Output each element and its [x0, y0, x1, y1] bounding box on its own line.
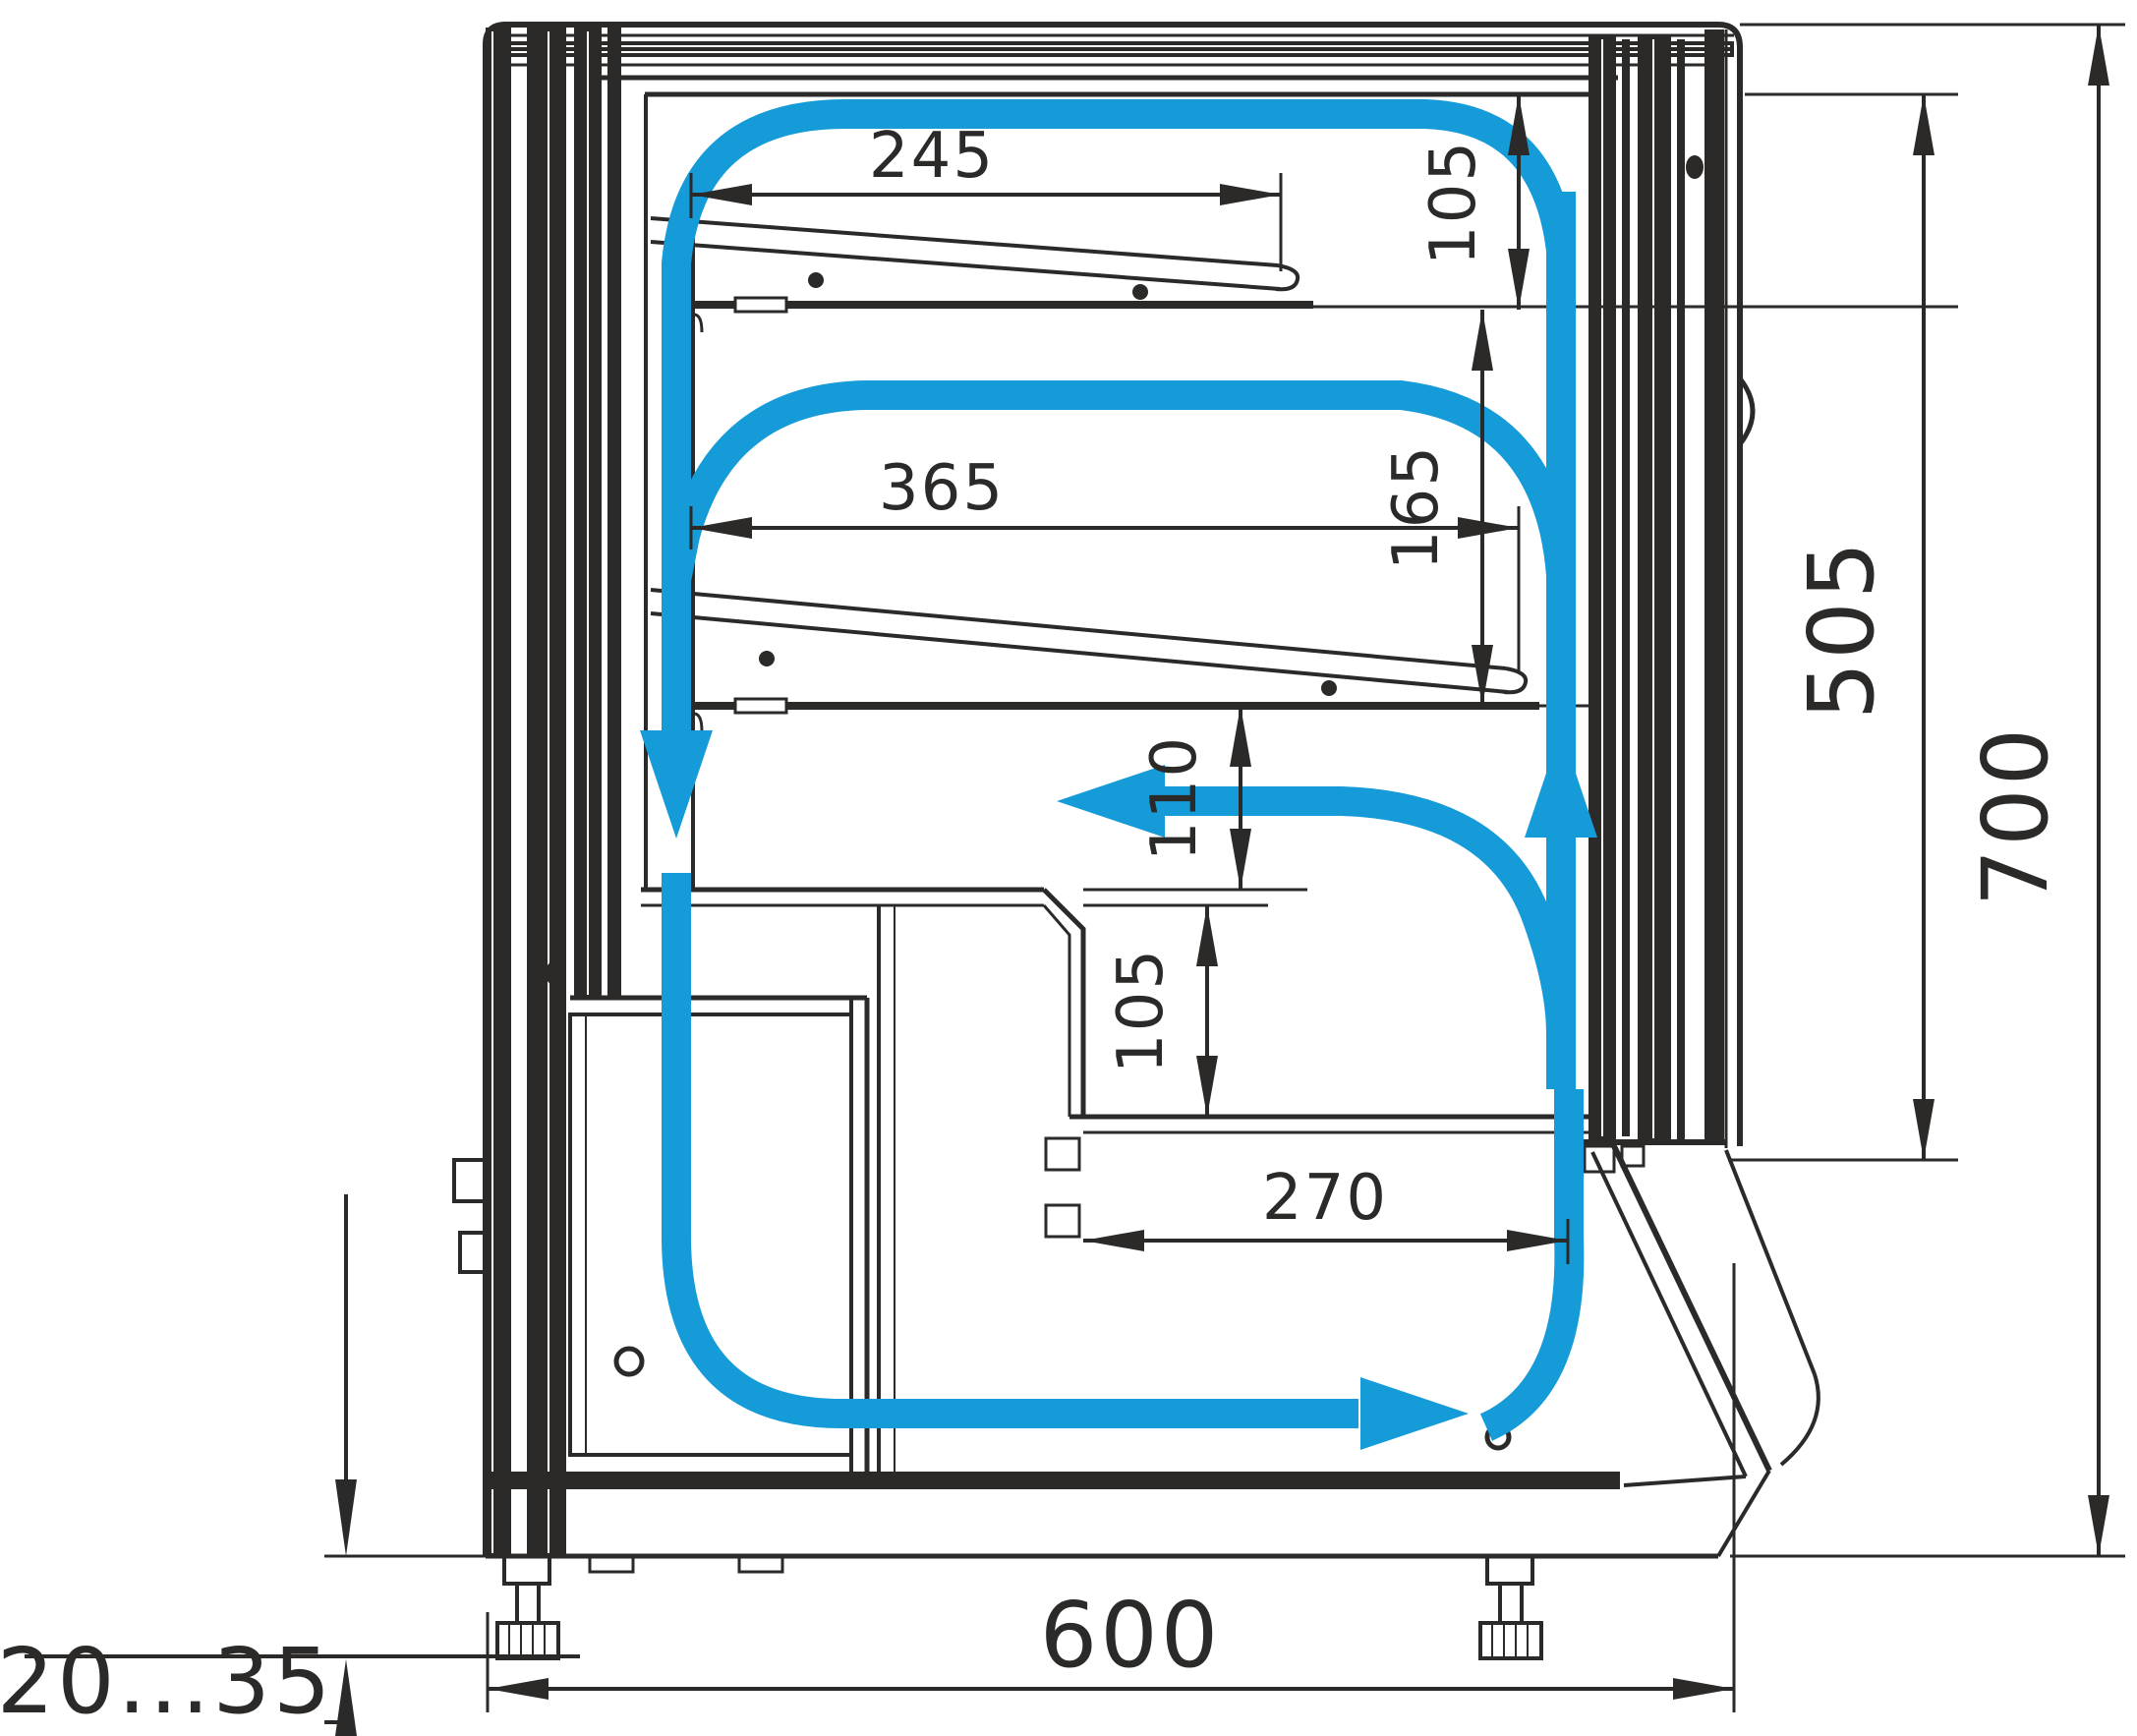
- shelf-screw-icon: [1321, 680, 1337, 696]
- canopy: [491, 35, 1734, 94]
- shelf-upper: [651, 218, 1958, 332]
- dim-165: 165: [1380, 310, 1493, 706]
- dim-700: 700: [1730, 25, 2125, 1556]
- dim-105-well: 105: [1105, 905, 1218, 1117]
- dim-label-700: 700: [1963, 725, 2068, 907]
- front-glass: [1573, 29, 1753, 1172]
- rear-bracket-tab: [460, 1233, 486, 1272]
- dim-245: 245: [691, 120, 1281, 271]
- airflow-arrow-up-icon: [1525, 729, 1597, 838]
- adjustable-foot-right: [1480, 1556, 1541, 1658]
- dim-label-600: 600: [1040, 1583, 1222, 1688]
- shelf-screw-icon: [759, 651, 775, 666]
- dim-label-245: 245: [869, 120, 995, 193]
- shelf-screw-icon: [1132, 284, 1148, 300]
- shelf-screw-icon: [808, 272, 824, 288]
- dim-label-105-top: 105: [1417, 140, 1490, 265]
- adjustable-foot-left: [497, 1556, 558, 1658]
- shelf-middle: [651, 590, 1600, 731]
- dim-label-105-well: 105: [1105, 948, 1178, 1073]
- dim-270: 270: [1083, 1162, 1568, 1264]
- dim-label-20-35: 20...35: [0, 1629, 333, 1734]
- airflow-arrow-down-icon: [640, 730, 713, 839]
- airflow-bottom-right-bend: [1486, 1089, 1569, 1427]
- dim-label-110: 110: [1138, 735, 1211, 861]
- airflow-arrow-right-icon: [1360, 1377, 1469, 1450]
- glass-frame-screw-icon: [1686, 155, 1704, 179]
- airflow-lower-band: [1165, 801, 1561, 1034]
- post-screw-icon: [546, 961, 561, 985]
- dim-label-365: 365: [879, 452, 1005, 525]
- rear-bracket-tab: [454, 1160, 486, 1201]
- dim-label-165: 165: [1380, 444, 1453, 570]
- dim-label-505: 505: [1789, 539, 1894, 721]
- dim-label-270: 270: [1262, 1162, 1388, 1235]
- front-kick-panel: [1487, 1146, 1819, 1556]
- display-case-cross-section: 245 365 105 165: [0, 0, 2137, 1736]
- dim-505: 505: [1728, 94, 1958, 1160]
- technical-diagram: 245 365 105 165: [0, 0, 2137, 1736]
